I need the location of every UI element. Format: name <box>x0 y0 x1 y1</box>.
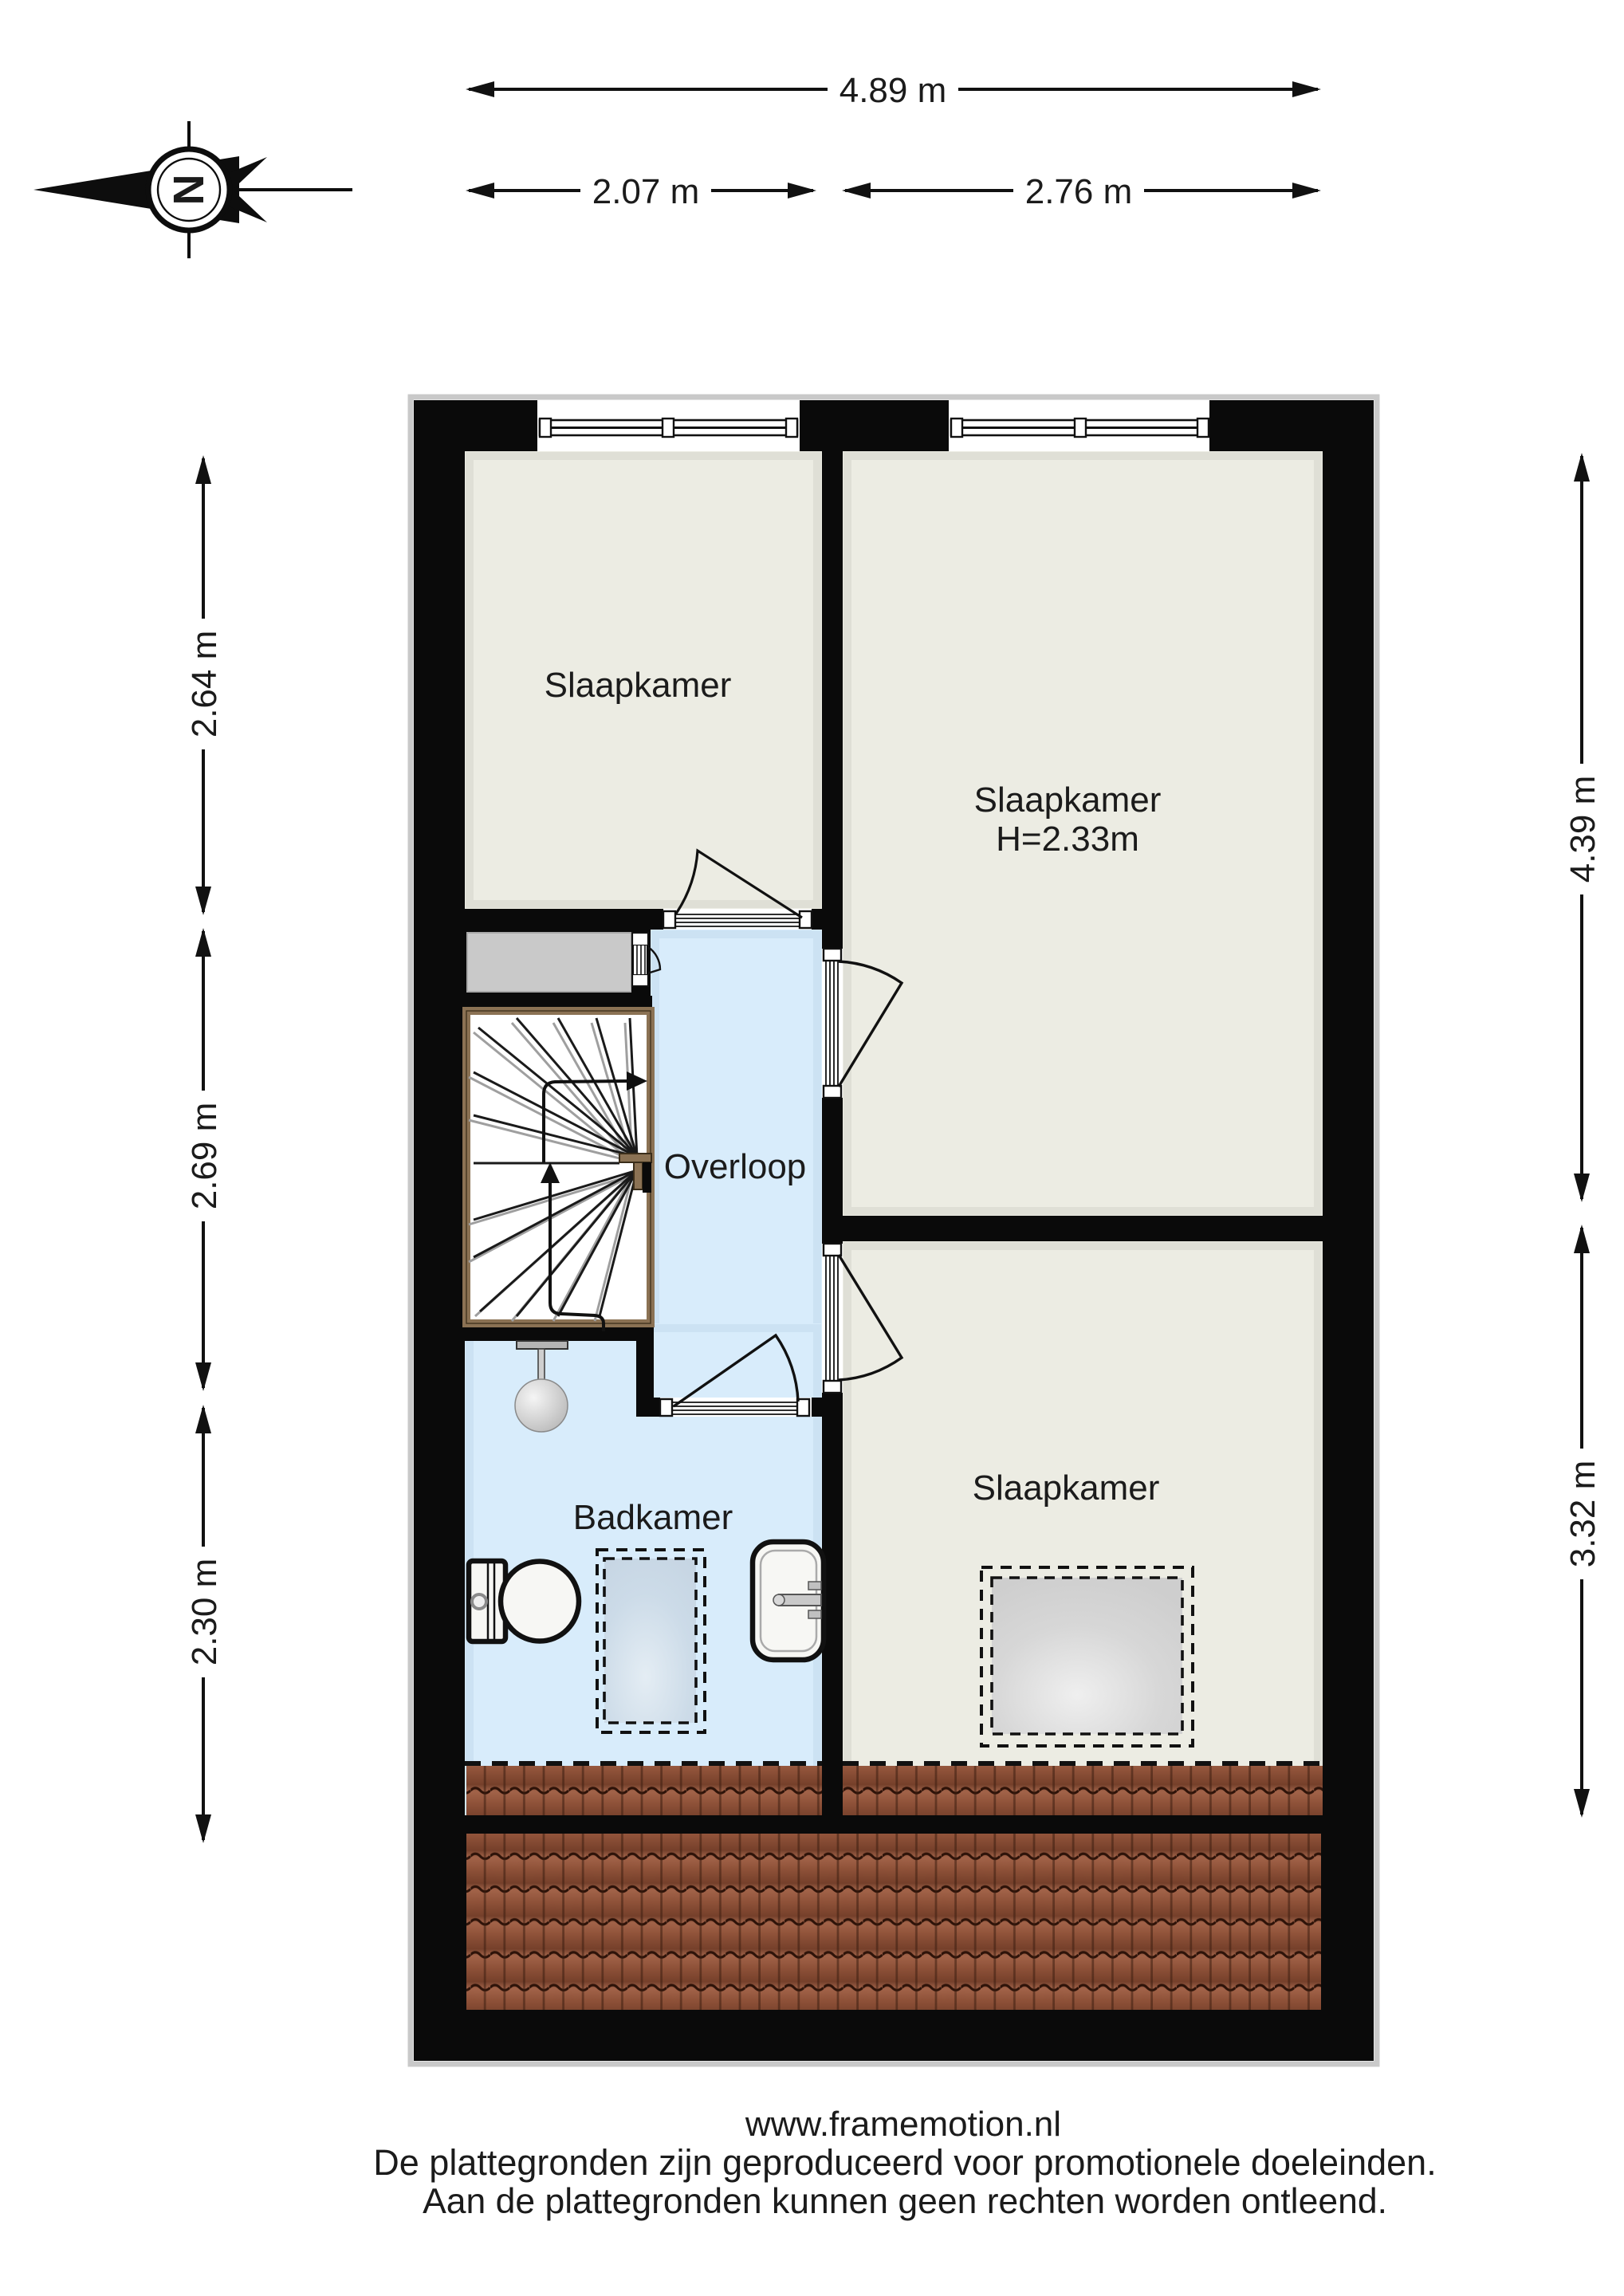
svg-text:Badkamer: Badkamer <box>573 1498 733 1537</box>
svg-text:De plattegronden zijn geproduc: De plattegronden zijn geproduceerd voor … <box>373 2142 1436 2183</box>
svg-text:2.64 m: 2.64 m <box>185 631 224 738</box>
svg-text:Aan de plattegronden kunnen ge: Aan de plattegronden kunnen geen rechten… <box>423 2182 1387 2221</box>
svg-text:2.30 m: 2.30 m <box>185 1559 224 1666</box>
svg-text:4.39 m: 4.39 m <box>1563 776 1602 883</box>
svg-text:2.07 m: 2.07 m <box>592 172 700 211</box>
svg-text:3.32 m: 3.32 m <box>1563 1461 1602 1568</box>
svg-text:Slaapkamer: Slaapkamer <box>973 1468 1160 1508</box>
svg-text:2.76 m: 2.76 m <box>1025 172 1133 211</box>
svg-text:www.framemotion.nl: www.framemotion.nl <box>745 2105 1061 2144</box>
svg-text:N: N <box>165 175 213 206</box>
svg-text:Overloop: Overloop <box>664 1147 807 1186</box>
svg-text:2.69 m: 2.69 m <box>185 1103 224 1210</box>
svg-text:Slaapkamer: Slaapkamer <box>545 666 732 705</box>
svg-text:Slaapkamer: Slaapkamer <box>974 780 1162 820</box>
svg-text:4.89 m: 4.89 m <box>840 71 947 110</box>
svg-text:H=2.33m: H=2.33m <box>996 820 1139 859</box>
